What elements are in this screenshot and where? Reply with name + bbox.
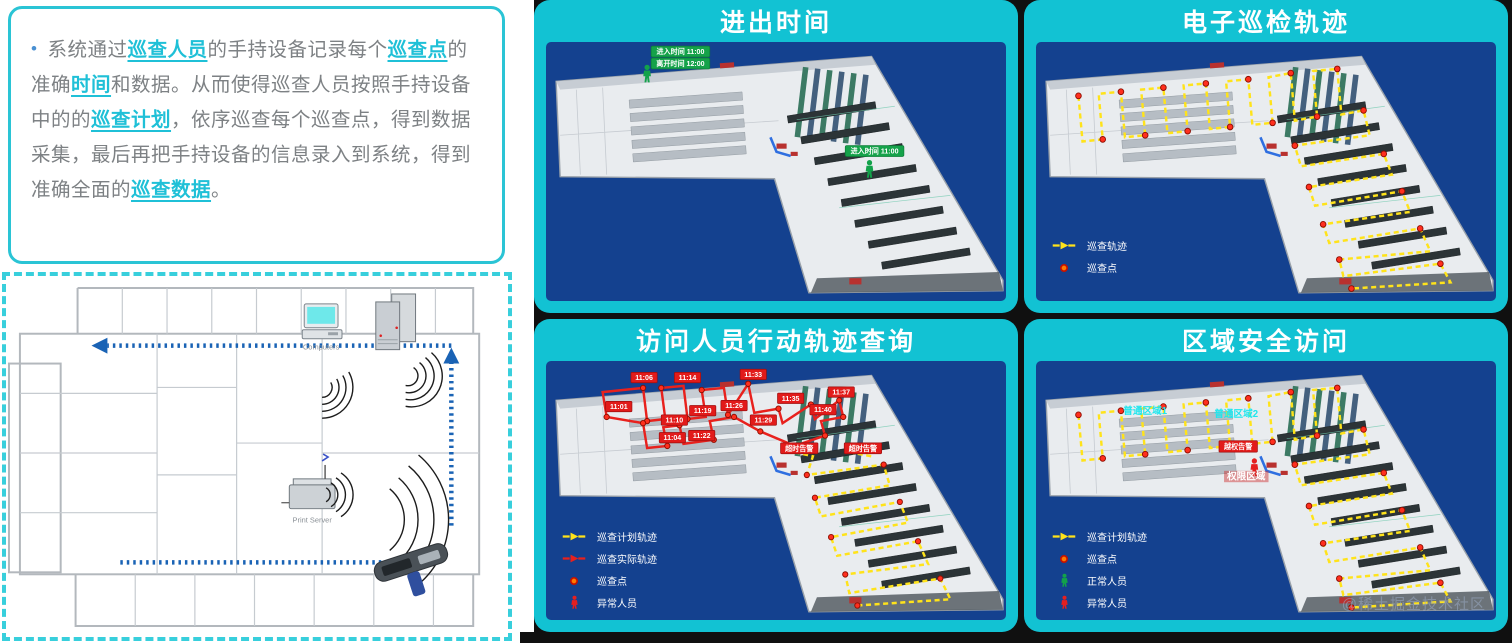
svg-text:11:14: 11:14 — [679, 374, 697, 382]
time-tag: 11:40 — [810, 405, 836, 415]
map-svg: 进入时间 11:00 离开时间 12:00 进入时间 11:00 — [546, 42, 1006, 301]
watermark: @稀土掘金技术社区 — [1342, 593, 1486, 614]
server-label: Print Server — [293, 516, 333, 525]
patrol-point-icon — [1050, 263, 1078, 273]
facility-building — [556, 57, 1003, 293]
svg-text:越权告警: 越权告警 — [1223, 442, 1253, 451]
legend-label: 巡查计划轨迹 — [1087, 529, 1147, 544]
legend-item-point: 巡查点 — [1050, 551, 1147, 566]
time-tag: 11:37 — [828, 387, 854, 397]
legend-label: 巡查计划轨迹 — [597, 529, 657, 544]
intro-text: •系统通过巡查人员的手持设备记录每个巡查点的准确时间和数据。从而使得巡查人员按照… — [31, 31, 486, 208]
arrowhead-left — [91, 338, 107, 354]
entry-exit-tag-1: 进入时间 11:00 离开时间 12:00 — [651, 46, 710, 69]
panel-title: 进出时间 — [534, 0, 1018, 42]
intro-seg-highlight: 巡查点 — [388, 39, 448, 61]
time-tag: 11:10 — [661, 415, 687, 425]
legend: 巡查计划轨迹 巡查点 正常人员 异常人员 — [1050, 529, 1147, 610]
red-person-icon — [1050, 595, 1078, 610]
time-tag: 11:26 — [721, 400, 747, 410]
intro-seg: 的手持设备记录每个 — [207, 39, 387, 61]
intro-seg-highlight: 时间 — [71, 74, 111, 96]
facility-map-entry-exit: 进入时间 11:00 离开时间 12:00 进入时间 11:00 — [546, 42, 1006, 301]
legend-label: 巡查点 — [1087, 551, 1117, 566]
panel-patrol-track: 电子巡检轨迹 — [1024, 0, 1508, 313]
computers-label: Computers — [303, 343, 340, 352]
patrol-point-icon — [1050, 554, 1078, 564]
right-section: 进出时间 — [520, 0, 1512, 643]
red-route-icon — [560, 553, 588, 564]
facility-map-area-access: 普通区域1 普通区域2 越权告警 权限区域 巡查计划轨迹 — [1036, 361, 1496, 620]
leave-time-label: 离开时间 12:00 — [656, 59, 704, 68]
legend-label: 巡查实际轨迹 — [597, 551, 657, 566]
svg-text:权限区域: 权限区域 — [1226, 470, 1266, 483]
time-tag: 11:22 — [689, 430, 715, 440]
legend-label: 巡查点 — [597, 573, 627, 588]
time-tag: 11:14 — [674, 372, 700, 382]
legend-item-track: 巡查轨迹 — [1050, 238, 1127, 253]
red-person-icon — [560, 595, 588, 610]
zone-label: 权限区域 — [1224, 470, 1268, 483]
panel-entry-exit: 进出时间 — [534, 0, 1018, 313]
svg-text:超时告警: 超时告警 — [784, 444, 814, 453]
intro-seg: 。 — [211, 179, 231, 201]
legend-item-actual: 巡查实际轨迹 — [560, 551, 657, 566]
floorplan-diagram: Computers Print Server — [2, 272, 512, 641]
facility-map-visitor-track: 11:01 11:06 11:10 11:04 11:14 11:19 11:2… — [546, 361, 1006, 620]
panel-grid: 进出时间 — [534, 0, 1508, 632]
area-label: 普通区域2 — [1214, 407, 1258, 420]
legend: 巡查轨迹 巡查点 — [1050, 238, 1127, 275]
time-tag: 11:19 — [690, 406, 716, 416]
svg-text:11:01: 11:01 — [610, 403, 628, 411]
intro-seg: 系统通过 — [47, 39, 127, 61]
legend-item-point: 巡查点 — [560, 573, 657, 588]
panel-visitor-track: 访问人员行动轨迹查询 — [534, 319, 1018, 632]
svg-text:11:26: 11:26 — [725, 402, 743, 410]
computer-icon: Computers — [302, 304, 342, 352]
arrowhead-up — [443, 348, 459, 364]
svg-text:超时告警: 超时告警 — [848, 444, 878, 453]
panel-title: 区域安全访问 — [1024, 319, 1508, 361]
bullet-icon: • — [31, 39, 37, 58]
time-tag: 11:29 — [750, 415, 776, 425]
intro-box: •系统通过巡查人员的手持设备记录每个巡查点的准确时间和数据。从而使得巡查人员按照… — [8, 6, 505, 264]
svg-text:11:35: 11:35 — [782, 395, 800, 403]
svg-text:11:33: 11:33 — [744, 371, 762, 379]
panel-area-access: 区域安全访问 — [1024, 319, 1508, 632]
legend-item-plan: 巡查计划轨迹 — [560, 529, 657, 544]
yellow-route-icon — [1050, 240, 1078, 251]
svg-text:11:04: 11:04 — [664, 434, 682, 442]
legend-label: 异常人员 — [1087, 595, 1127, 610]
svg-text:11:29: 11:29 — [755, 416, 773, 424]
enter-time-label: 进入时间 11:00 — [851, 147, 899, 156]
intro-seg-highlight: 巡查计划 — [91, 109, 171, 131]
legend-label: 异常人员 — [597, 595, 637, 610]
legend-item-point: 巡查点 — [1050, 260, 1127, 275]
intro-seg-highlight: 巡查数据 — [131, 179, 211, 201]
svg-text:11:10: 11:10 — [666, 416, 684, 424]
enter-time-label: 进入时间 11:00 — [656, 47, 704, 56]
facility-map-patrol-track: 巡查轨迹 巡查点 — [1036, 42, 1496, 301]
alarm-tag: 超时告警 — [781, 443, 818, 454]
svg-text:11:19: 11:19 — [694, 407, 712, 415]
time-tag: 11:01 — [606, 401, 632, 411]
legend-label: 巡查轨迹 — [1087, 238, 1127, 253]
yellow-route-icon — [560, 531, 588, 542]
time-tag: 11:06 — [631, 372, 657, 382]
legend-item-abnormal: 异常人员 — [560, 595, 657, 610]
svg-text:11:37: 11:37 — [832, 388, 850, 396]
svg-text:11:40: 11:40 — [814, 406, 832, 414]
time-tag: 11:33 — [740, 369, 766, 379]
entry-exit-tag-2: 进入时间 11:00 — [845, 146, 904, 157]
green-person-icon — [1050, 573, 1078, 588]
legend-item-normal: 正常人员 — [1050, 573, 1147, 588]
svg-text:11:22: 11:22 — [693, 432, 711, 440]
intro-seg-highlight: 巡查人员 — [127, 39, 207, 61]
legend: 巡查计划轨迹 巡查实际轨迹 巡查点 异常人员 — [560, 529, 657, 610]
svg-text:11:06: 11:06 — [635, 374, 653, 382]
print-server-icon: Print Server — [281, 454, 335, 525]
panel-title: 访问人员行动轨迹查询 — [534, 319, 1018, 361]
yellow-route-icon — [1050, 531, 1078, 542]
panel-title: 电子巡检轨迹 — [1024, 0, 1508, 42]
legend-label: 正常人员 — [1087, 573, 1127, 588]
time-tag: 11:04 — [659, 432, 685, 442]
legend-item-abnormal: 异常人员 — [1050, 595, 1147, 610]
legend-item-plan: 巡查计划轨迹 — [1050, 529, 1147, 544]
area-label: 普通区域1 — [1123, 404, 1167, 417]
time-tag: 11:35 — [778, 393, 804, 403]
server-icon — [376, 294, 416, 350]
legend-label: 巡查点 — [1087, 260, 1117, 275]
floorplan-svg: Computers Print Server — [6, 276, 508, 637]
alarm-tag: 超时告警 — [844, 443, 881, 454]
patrol-point-icon — [560, 576, 588, 586]
alarm-tag: 越权告警 — [1219, 441, 1257, 452]
gap-strip — [520, 0, 534, 632]
